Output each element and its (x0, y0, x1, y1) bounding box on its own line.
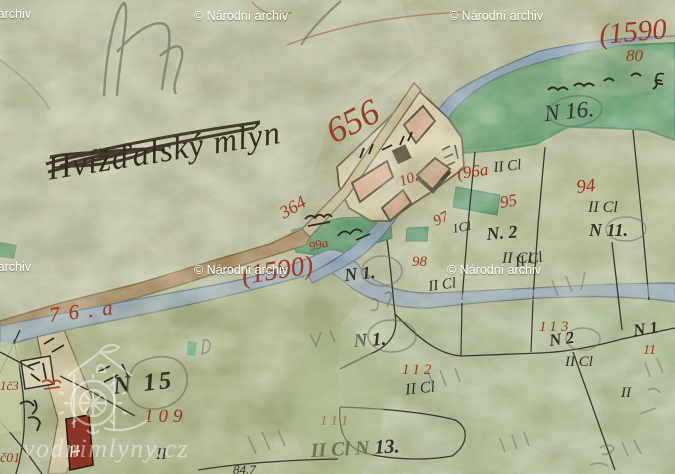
svg-text:N 16.: N 16. (542, 96, 595, 126)
svg-text:č01: č01 (0, 451, 20, 466)
svg-text:N 1.: N 1. (342, 262, 376, 285)
svg-text:© Národní archiv: © Národní archiv (0, 7, 32, 21)
svg-text:94: 94 (575, 175, 597, 198)
svg-text:© Národní archiv: © Národní archiv (194, 9, 289, 23)
svg-text:© Národní archiv: © Národní archiv (447, 263, 542, 277)
svg-text:II Cl: II Cl (587, 199, 618, 216)
svg-text:© Národní archiv: © Národní archiv (194, 263, 289, 277)
svg-text:© Národní archiv: © Národní archiv (449, 9, 544, 23)
svg-text:II Cl: II Cl (492, 157, 522, 176)
svg-text:II Cl: II Cl (564, 354, 593, 370)
svg-text:1č3: 1č3 (0, 378, 19, 393)
svg-text:N 2: N 2 (547, 328, 576, 351)
svg-text:II: II (620, 385, 632, 401)
svg-text:N 1: N 1 (631, 318, 659, 340)
svg-text:vodnimlyny.cz: vodnimlyny.cz (23, 434, 189, 463)
svg-text:98: 98 (412, 254, 428, 270)
svg-text:N. 2: N. 2 (485, 221, 519, 244)
svg-text:112: 112 (402, 362, 435, 378)
svg-text:11: 11 (643, 343, 656, 358)
svg-text:80: 80 (626, 46, 644, 65)
svg-text:© Národní archiv: © Národní archiv (0, 260, 32, 274)
svg-text:95: 95 (498, 190, 518, 212)
svg-text:84.7: 84.7 (233, 462, 256, 474)
